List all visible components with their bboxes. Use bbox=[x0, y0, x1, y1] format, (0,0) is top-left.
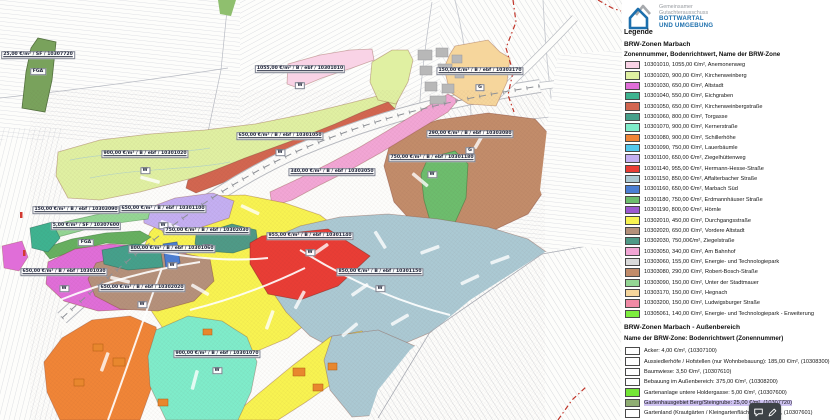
legend-item-10301010[interactable]: 10301010, 1055,00 €/m², Anemonenweg bbox=[625, 60, 833, 70]
hover-toolbar bbox=[749, 403, 781, 420]
zones-section-title: BRW-Zonen Marbach bbox=[624, 41, 690, 48]
map-canvas[interactable]: 25,00 €/m² / SF / 10307720FGA1055,00 €/m… bbox=[0, 0, 622, 420]
legend-swatch bbox=[625, 268, 640, 276]
legend-item-10303080[interactable]: 10303080, 290,00 €/m², Robert-Bosch-Stra… bbox=[625, 267, 833, 277]
legend-label: 10301010, 1055,00 €/m², Anemonenweg bbox=[644, 62, 745, 68]
legend-swatch bbox=[625, 409, 640, 417]
legend-label: 10303060, 155,00 €/m², Energie- und Tech… bbox=[644, 259, 779, 265]
legend-item-10302020[interactable]: 10302020, 650,00 €/m², Vordere Altstadt bbox=[625, 226, 833, 236]
legend-swatch bbox=[625, 247, 640, 255]
legend-label: Gartenanlage untere Holdergasse: 5,00 €/… bbox=[644, 390, 787, 396]
legend-swatch bbox=[625, 347, 640, 355]
legend-item-10301180[interactable]: 10301180, 750,00 €/m², Erdmannhäuser Str… bbox=[625, 195, 833, 205]
legend-swatch bbox=[625, 196, 640, 204]
legend-item-10303050[interactable]: 10303050, 340,00 €/m², Am Bahnhof bbox=[625, 246, 833, 256]
legend-item-10305061[interactable]: 10305061, 140,00 €/m², Energie- und Tech… bbox=[625, 309, 833, 319]
legend-swatch bbox=[625, 123, 640, 131]
legend-item-10301140[interactable]: 10301140, 955,00 €/m², Hermann-Hesse-Str… bbox=[625, 164, 833, 174]
legend-swatch bbox=[625, 185, 640, 193]
aussenbereich-list: Acker: 4,00 €/m², (10307100)Aussiedlerhö… bbox=[625, 346, 833, 420]
legend-swatch bbox=[625, 175, 640, 183]
legend-item-aussen-10308200[interactable]: Bebauung im Außenbereich: 375,00 €/m², (… bbox=[625, 377, 833, 387]
comment-icon[interactable] bbox=[753, 407, 764, 418]
legend-swatch bbox=[625, 154, 640, 162]
legend-label: 10301160, 650,00 €/m², Marbach Süd bbox=[644, 186, 738, 192]
legend-label: 10301060, 800,00 €/m², Torgasse bbox=[644, 114, 728, 120]
edit-icon[interactable] bbox=[767, 407, 778, 418]
legend-item-10301160[interactable]: 10301160, 650,00 €/m², Marbach Süd bbox=[625, 184, 833, 194]
legend-swatch bbox=[625, 258, 640, 266]
legend-label: 10303080, 290,00 €/m², Robert-Bosch-Stra… bbox=[644, 269, 758, 275]
legend-label: Aussiedlerhöfe / Hofstellen (nur Wohnbeb… bbox=[644, 359, 830, 365]
legend-item-10301060[interactable]: 10301060, 800,00 €/m², Torgasse bbox=[625, 112, 833, 122]
legend-swatch bbox=[625, 71, 640, 79]
legend-swatch bbox=[625, 165, 640, 173]
legend-item-aussen-10307601[interactable]: Gartenland (Krautgärten / Kleingartenflä… bbox=[625, 408, 833, 418]
legend-label: 10302010, 450,00 €/m², Durchgangsstraße bbox=[644, 218, 751, 224]
legend-item-10301030[interactable]: 10301030, 650,00 €/m², Altstadt bbox=[625, 81, 833, 91]
legend-label: Acker: 4,00 €/m², (10307100) bbox=[644, 348, 717, 354]
legend-label: Bebauung im Außenbereich: 375,00 €/m², (… bbox=[644, 379, 778, 385]
legend-swatch bbox=[625, 113, 640, 121]
legend-item-10301090[interactable]: 10301090, 750,00 €/m², Lauerbäumle bbox=[625, 143, 833, 153]
brw-zone-list: 10301010, 1055,00 €/m², Anemonenweg10301… bbox=[625, 60, 833, 319]
legend-label: 10301140, 955,00 €/m², Hermann-Hesse-Str… bbox=[644, 166, 764, 172]
legend-swatch bbox=[625, 206, 640, 214]
legend-title: Legende bbox=[624, 29, 653, 36]
legend-swatch bbox=[625, 82, 640, 90]
legend-swatch bbox=[625, 92, 640, 100]
legend-swatch bbox=[625, 368, 640, 376]
legend-item-10301190[interactable]: 10301190, 800,00 €/m², Hörnle bbox=[625, 205, 833, 215]
map-image bbox=[0, 0, 622, 420]
legend-swatch bbox=[625, 310, 640, 318]
legend-item-10301100[interactable]: 10301100, 650,00 €/m², Ziegelhüttenweg bbox=[625, 153, 833, 163]
legend-swatch bbox=[625, 227, 640, 235]
legend-item-10301050[interactable]: 10301050, 650,00 €/m², Kirchenweinbergst… bbox=[625, 101, 833, 111]
legend-label: 10301020, 900,00 €/m², Kirchenweinberg bbox=[644, 73, 747, 79]
legend-label: 10301100, 650,00 €/m², Ziegelhüttenweg bbox=[644, 155, 746, 161]
legend-swatch bbox=[625, 399, 640, 407]
legend-item-10303090[interactable]: 10303090, 150,00 €/m², Unter der Stadtma… bbox=[625, 278, 833, 288]
legend-label: 10301190, 800,00 €/m², Hörnle bbox=[644, 207, 721, 213]
legend-swatch bbox=[625, 388, 640, 396]
legend-swatch bbox=[625, 378, 640, 386]
legend-swatch bbox=[625, 61, 640, 69]
legend-item-aussen-10307720[interactable]: Gartenhausgebiet Berg/Steingrube: 25,00 … bbox=[625, 398, 833, 408]
legend-swatch bbox=[625, 237, 640, 245]
legend-item-aussen-10307610[interactable]: Baumwiese: 3,50 €/m², (10307610) bbox=[625, 367, 833, 377]
legend-label: 10301040, 550,00 €/m², Eichgraben bbox=[644, 93, 733, 99]
legend-swatch bbox=[625, 144, 640, 152]
legend-label: 10301150, 850,00 €/m², Affalterbacher St… bbox=[644, 176, 757, 182]
legend-label: 10301050, 650,00 €/m², Kirchenweinbergst… bbox=[644, 104, 762, 110]
org-name-line4: UND UMGEBUNG bbox=[659, 23, 713, 30]
legend-label: 10301080, 900,00 €/m², Schillerhöhe bbox=[644, 135, 736, 141]
zones-section-subtitle: Zonennummer, Bodenrichtwert, Name der BR… bbox=[624, 51, 780, 58]
legend-item-10302030[interactable]: 10302030, 750,00€/m², Ziegelstraße bbox=[625, 236, 833, 246]
legend-label: 10303090, 150,00 €/m², Unter der Stadtma… bbox=[644, 280, 759, 286]
legend-item-aussen-10307100[interactable]: Acker: 4,00 €/m², (10307100) bbox=[625, 346, 833, 356]
legend-label: 10301090, 750,00 €/m², Lauerbäumle bbox=[644, 145, 738, 151]
legend-label: 10303200, 150,00 €/m², Ludwigsburger Str… bbox=[644, 300, 760, 306]
legend-item-10303060[interactable]: 10303060, 155,00 €/m², Energie- und Tech… bbox=[625, 257, 833, 267]
legend-item-aussen-10308300[interactable]: Aussiedlerhöfe / Hofstellen (nur Wohnbeb… bbox=[625, 356, 833, 366]
house-logo-icon bbox=[626, 2, 656, 32]
legend-item-10301020[interactable]: 10301020, 900,00 €/m², Kirchenweinberg bbox=[625, 70, 833, 80]
legend-label: 10302020, 650,00 €/m², Vordere Altstadt bbox=[644, 228, 744, 234]
brand-logo: Gemeinsamer Gutachterausschuss BOTTWARTA… bbox=[626, 2, 713, 32]
legend-swatch bbox=[625, 216, 640, 224]
legend-panel: Gemeinsamer Gutachterausschuss BOTTWARTA… bbox=[622, 0, 833, 420]
legend-swatch bbox=[625, 102, 640, 110]
legend-item-10303200[interactable]: 10303200, 150,00 €/m², Ludwigsburger Str… bbox=[625, 298, 833, 308]
legend-label: 10303050, 340,00 €/m², Am Bahnhof bbox=[644, 249, 735, 255]
legend-swatch bbox=[625, 357, 640, 365]
legend-item-10302010[interactable]: 10302010, 450,00 €/m², Durchgangsstraße bbox=[625, 215, 833, 225]
legend-label: 10301180, 750,00 €/m², Erdmannhäuser Str… bbox=[644, 197, 763, 203]
app-window: 25,00 €/m² / SF / 10307720FGA1055,00 €/m… bbox=[0, 0, 833, 420]
legend-swatch bbox=[625, 134, 640, 142]
legend-label: 10302030, 750,00€/m², Ziegelstraße bbox=[644, 238, 735, 244]
aussenbereich-section-subtitle: Name der BRW-Zone: Bodenrichtwert (Zonen… bbox=[624, 335, 783, 342]
legend-swatch bbox=[625, 289, 640, 297]
legend-item-10301040[interactable]: 10301040, 550,00 €/m², Eichgraben bbox=[625, 91, 833, 101]
legend-item-aussen-10307600[interactable]: Gartenanlage untere Holdergasse: 5,00 €/… bbox=[625, 387, 833, 397]
legend-label: Baumwiese: 3,50 €/m², (10307610) bbox=[644, 369, 731, 375]
legend-label: 10303170, 150,00 €/m², Hegnach bbox=[644, 290, 727, 296]
legend-item-10301080[interactable]: 10301080, 900,00 €/m², Schillerhöhe bbox=[625, 133, 833, 143]
legend-label: Gartenland (Krautgärten / Kleingartenflä… bbox=[644, 410, 813, 416]
legend-label: 10305061, 140,00 €/m², Energie- und Tech… bbox=[644, 311, 814, 317]
aussenbereich-section-title: BRW-Zonen Marbach - Außenbereich bbox=[624, 324, 740, 331]
legend-label: 10301030, 650,00 €/m², Altstadt bbox=[644, 83, 723, 89]
legend-item-10301070[interactable]: 10301070, 900,00 €/m², Kernerstraße bbox=[625, 122, 833, 132]
legend-label: 10301070, 900,00 €/m², Kernerstraße bbox=[644, 124, 738, 130]
legend-swatch bbox=[625, 279, 640, 287]
legend-item-10301150[interactable]: 10301150, 850,00 €/m², Affalterbacher St… bbox=[625, 174, 833, 184]
legend-swatch bbox=[625, 299, 640, 307]
legend-item-10303170[interactable]: 10303170, 150,00 €/m², Hegnach bbox=[625, 288, 833, 298]
